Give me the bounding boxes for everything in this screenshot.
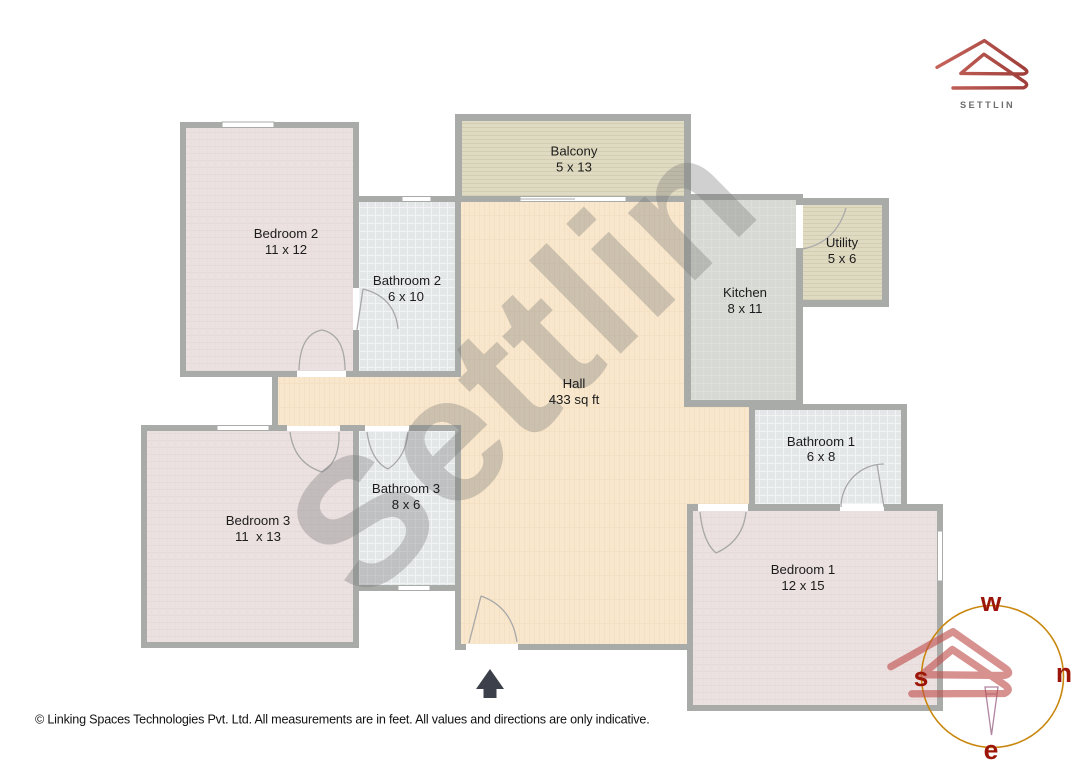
svg-text:n: n: [1056, 658, 1072, 688]
svg-text:6 x 8: 6 x 8: [807, 449, 836, 464]
svg-text:5 x 6: 5 x 6: [828, 251, 857, 266]
svg-text:Balcony: Balcony: [551, 144, 598, 159]
svg-text:8 x 6: 8 x 6: [392, 497, 421, 512]
svg-text:11 x 12: 11 x 12: [265, 242, 307, 257]
svg-text:433 sq ft: 433 sq ft: [549, 392, 600, 407]
svg-text:8 x 11: 8 x 11: [728, 301, 763, 316]
svg-text:5 x 13: 5 x 13: [556, 160, 592, 175]
svg-text:Bedroom 3: Bedroom 3: [226, 513, 291, 528]
svg-text:© Linking Spaces Technologies: © Linking Spaces Technologies Pvt. Ltd. …: [35, 713, 650, 727]
svg-text:SETTLIN: SETTLIN: [960, 100, 1015, 110]
svg-text:Bathroom 1: Bathroom 1: [787, 434, 855, 449]
svg-text:Bathroom 3: Bathroom 3: [372, 481, 440, 496]
svg-text:s: s: [914, 662, 929, 692]
svg-text:Bathroom 2: Bathroom 2: [373, 273, 441, 288]
svg-text:Kitchen: Kitchen: [723, 285, 767, 300]
svg-text:Utility: Utility: [826, 235, 859, 250]
svg-text:e: e: [984, 735, 999, 764]
svg-text:Bedroom 1: Bedroom 1: [771, 562, 836, 577]
svg-text:6 x 10: 6 x 10: [388, 289, 424, 304]
svg-text:w: w: [980, 587, 1002, 617]
svg-text:Hall: Hall: [563, 376, 586, 391]
svg-text:Bedroom 2: Bedroom 2: [254, 226, 319, 241]
svg-text:11 x 13: 11 x 13: [235, 529, 281, 544]
svg-text:12 x 15: 12 x 15: [781, 578, 824, 593]
